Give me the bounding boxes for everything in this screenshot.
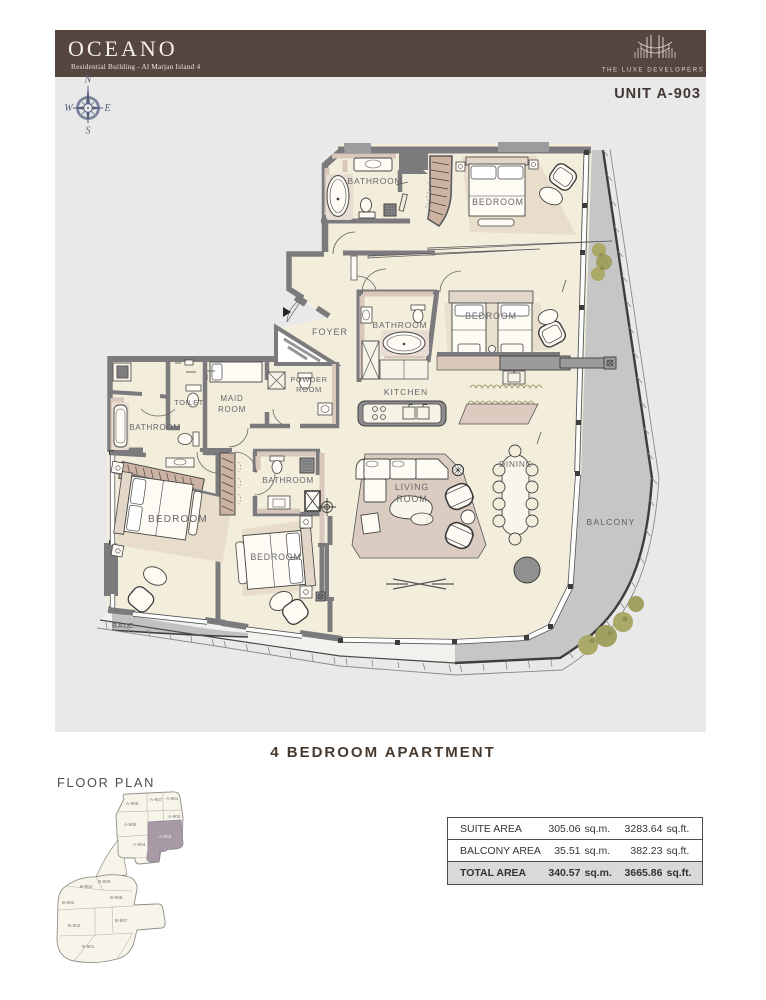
svg-text:ROOM: ROOM — [296, 385, 322, 394]
svg-text:TOILET: TOILET — [174, 398, 204, 407]
svg-text:BATHROOM: BATHROOM — [262, 476, 314, 485]
svg-text:BALCONY: BALCONY — [586, 517, 635, 527]
svg-text:A-903: A-903 — [159, 834, 172, 839]
svg-text:B-906: B-906 — [110, 895, 123, 900]
svg-text:BEDROOM: BEDROOM — [148, 514, 208, 525]
svg-text:B-902: B-902 — [68, 923, 81, 928]
svg-text:B-905: B-905 — [98, 879, 111, 884]
svg-text:BATHROOM: BATHROOM — [373, 320, 428, 330]
svg-text:ROOM: ROOM — [218, 405, 246, 414]
svg-text:ROOM: ROOM — [397, 494, 428, 504]
svg-text:A-905: A-905 — [124, 822, 137, 827]
svg-text:BEDROOM: BEDROOM — [472, 197, 524, 207]
svg-text:B-901: B-901 — [82, 944, 95, 949]
svg-text:S: S — [86, 126, 91, 137]
svg-text:B-907: B-907 — [115, 918, 128, 923]
svg-text:A-904: A-904 — [133, 842, 146, 847]
svg-text:LIVING: LIVING — [395, 482, 429, 492]
svg-text:KITCHEN: KITCHEN — [384, 387, 428, 397]
svg-text:FOYER: FOYER — [312, 327, 348, 337]
svg-text:E: E — [103, 103, 110, 114]
svg-text:A-902: A-902 — [168, 814, 181, 819]
svg-text:POWDER: POWDER — [290, 375, 327, 384]
svg-text:A-907: A-907 — [150, 797, 163, 802]
svg-text:B-903: B-903 — [62, 900, 75, 905]
svg-text:DINING: DINING — [499, 459, 533, 469]
svg-text:B-904: B-904 — [80, 884, 93, 889]
svg-text:N: N — [84, 75, 93, 86]
svg-text:BATHROOM: BATHROOM — [129, 423, 181, 432]
svg-text:A-906: A-906 — [126, 801, 139, 806]
svg-text:BEDROOM: BEDROOM — [465, 311, 517, 321]
svg-text:MAID: MAID — [220, 394, 243, 403]
svg-text:A-901: A-901 — [166, 796, 179, 801]
svg-text:BALC.: BALC. — [112, 621, 137, 630]
svg-text:W: W — [64, 103, 74, 114]
svg-text:BATHROOM: BATHROOM — [348, 176, 403, 186]
svg-text:BEDROOM: BEDROOM — [250, 552, 301, 562]
